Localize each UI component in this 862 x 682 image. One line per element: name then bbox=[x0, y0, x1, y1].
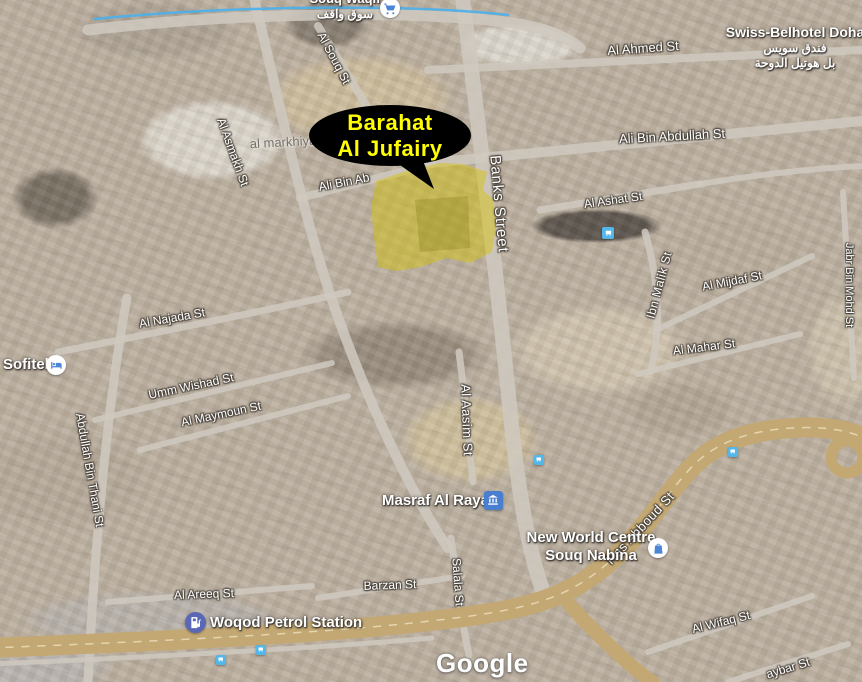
poi-label-new-world-centre[interactable]: New World CentreSouq Nabina bbox=[526, 529, 656, 566]
callout-title-line1: Barahat bbox=[347, 110, 432, 136]
callout-title-line2: Al Jufairy bbox=[337, 136, 442, 162]
poi-label-masraf-al-rayan[interactable]: Masraf Al Rayan bbox=[382, 492, 498, 510]
bank-icon[interactable] bbox=[484, 491, 503, 510]
highlighted-area-shade bbox=[415, 196, 470, 252]
poi-label-woqod-petrol-station[interactable]: Woqod Petrol Station bbox=[210, 614, 362, 632]
bus-icon[interactable] bbox=[216, 655, 226, 665]
bed-icon[interactable] bbox=[46, 355, 66, 375]
street-label-al-aasim-st: Al Aasim St bbox=[458, 384, 476, 456]
poi-label-swiss-belhotel-line2: فندق سويس bbox=[725, 41, 862, 56]
poi-label-souq-waqif[interactable]: Souq Waqifسوق واقف bbox=[303, 0, 387, 21]
bus-icon[interactable] bbox=[256, 645, 266, 655]
poi-label-masraf-al-rayan-line1: Masraf Al Rayan bbox=[382, 492, 498, 510]
google-watermark: Google bbox=[436, 648, 529, 679]
poi-label-new-world-centre-line1: New World Centre bbox=[526, 529, 656, 547]
poi-label-swiss-belhotel-line3: بل هوتيل الدوحة bbox=[725, 56, 862, 71]
poi-label-swiss-belhotel[interactable]: Swiss-Belhotel Dohaفندق سويسبل هوتيل الد… bbox=[725, 24, 862, 70]
poi-label-souq-waqif-line1: Souq Waqif bbox=[303, 0, 387, 7]
poi-label-sofitel[interactable]: Sofitel bbox=[3, 356, 49, 374]
callout-bubble: Barahat Al Jufairy bbox=[309, 105, 471, 166]
bag-icon[interactable] bbox=[648, 538, 668, 558]
street-label-barzan-st: Barzan St bbox=[363, 577, 416, 593]
poi-label-souq-waqif-line2: سوق واقف bbox=[303, 7, 387, 22]
satellite-map[interactable]: Al Souq StAl Ahmed StAli Bin Abdullah St… bbox=[0, 0, 862, 682]
street-label-jabr-bin-mohd-st: Jabr Bin Mohd St bbox=[843, 243, 855, 327]
poi-label-swiss-belhotel-line1: Swiss-Belhotel Doha bbox=[725, 24, 862, 41]
fuel-icon[interactable] bbox=[185, 612, 206, 633]
street-label-al-areeq-st: Al Areeq St bbox=[174, 586, 234, 602]
bus-icon[interactable] bbox=[728, 447, 738, 457]
roundabout bbox=[831, 441, 862, 473]
poi-label-new-world-centre-line2: Souq Nabina bbox=[526, 547, 656, 565]
poi-label-woqod-petrol-station-line1: Woqod Petrol Station bbox=[210, 614, 362, 632]
bus-icon[interactable] bbox=[534, 455, 544, 465]
cart-icon[interactable] bbox=[380, 0, 400, 18]
bus-icon[interactable] bbox=[602, 227, 614, 239]
poi-label-sofitel-line1: Sofitel bbox=[3, 356, 49, 374]
